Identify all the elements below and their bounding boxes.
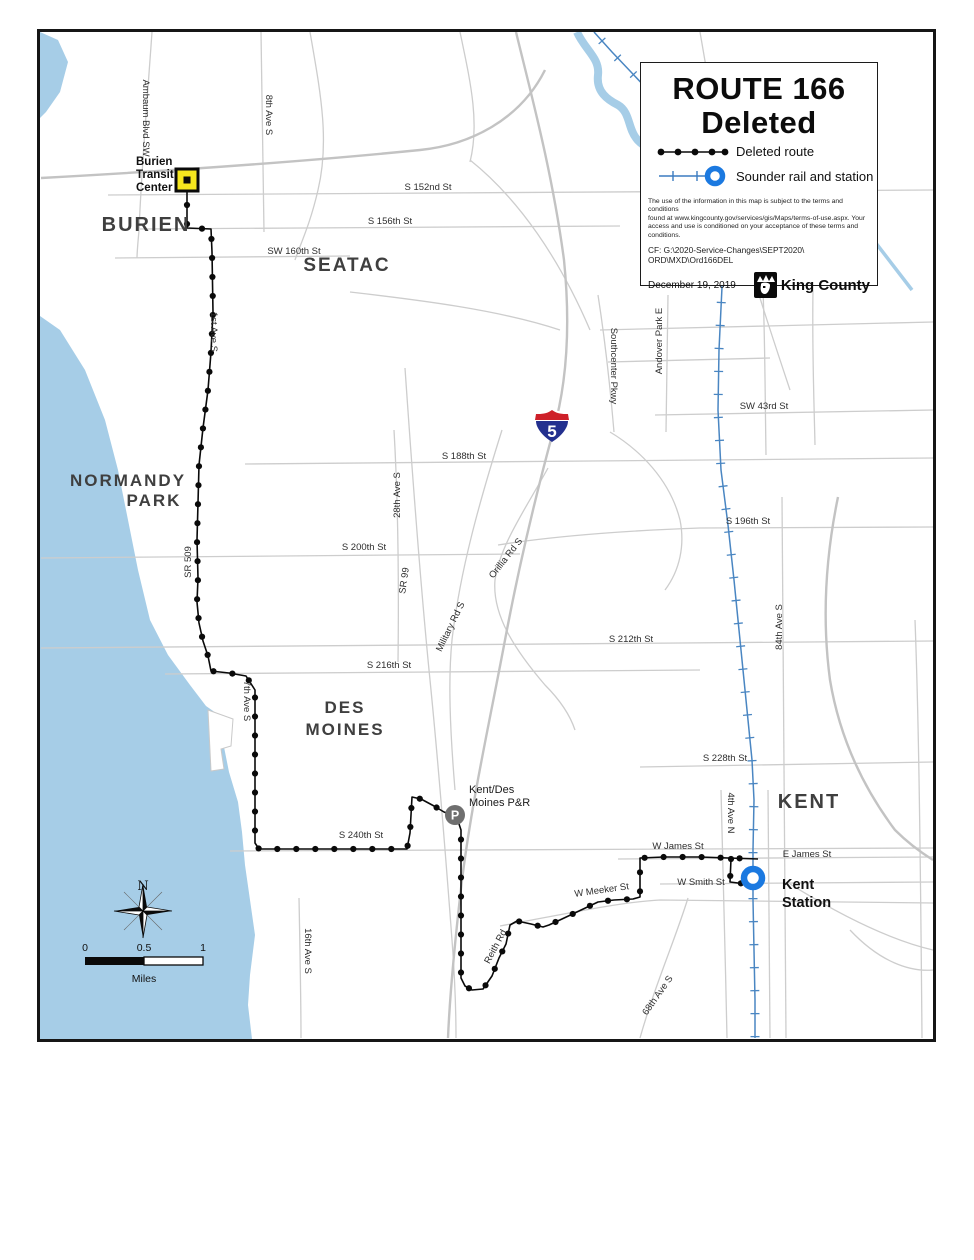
map-title-line1: ROUTE 166 — [641, 72, 877, 106]
street-label-84th-ave: 84th Ave S — [774, 604, 785, 650]
city-label-kent: KENT — [778, 791, 840, 813]
street-label-28th-ave: 28th Ave S — [392, 472, 403, 518]
street-label-1st-ave: 1st Ave S — [208, 312, 219, 352]
i5-shield-number: 5 — [547, 422, 556, 441]
disclaimer-line3: access and use is conditioned on your ac… — [648, 223, 871, 240]
cf-path-text: CF: G:\2020-Service-Changes\SEPT2020\ OR… — [648, 246, 871, 265]
disclaimer-text: The use of the information in this map i… — [648, 198, 871, 240]
cf-line2: ORD\MXD\Ord166DEL — [648, 256, 871, 266]
street-label-wsmith: W Smith St — [677, 877, 725, 888]
street-label-sw43: SW 43rd St — [740, 401, 789, 412]
pnr-label-2: Moines P&R — [469, 797, 530, 809]
street-label-s152: S 152nd St — [404, 182, 451, 193]
page: { "infobox": { "title1": "ROUTE 166", "t… — [0, 0, 974, 1260]
street-label-7th-ave: 7th Ave S — [241, 681, 252, 722]
btc-label-3: Center — [136, 182, 173, 194]
creek — [872, 238, 912, 290]
i5-shield-icon: 5 — [534, 408, 570, 442]
deleted-route-line — [187, 186, 452, 849]
scale-unit: Miles — [132, 973, 157, 985]
king-county-logo-icon — [754, 272, 777, 298]
street-label-8th-ave: 8th Ave S — [263, 95, 274, 136]
map-title-line2: Deleted — [641, 106, 877, 140]
street-label-s188: S 188th St — [442, 451, 487, 462]
kent-station-label-2: Station — [782, 895, 831, 911]
freeway-i5 — [448, 32, 567, 1038]
street-label-southcenter: Southcenter Pkwy — [608, 328, 619, 405]
street-label-military: Military Rd S — [434, 600, 467, 653]
btc-label-2: Transit — [136, 169, 174, 181]
pnr-label-1: Kent/Des — [469, 784, 515, 796]
park-and-ride-p: P — [451, 809, 459, 823]
water-inlet — [40, 32, 68, 118]
water-main — [40, 316, 255, 1039]
street-label-s228: S 228th St — [703, 753, 748, 764]
street-label-andover: Andover Park E — [654, 308, 665, 375]
disclaimer-line2: found at www.kingcounty.gov/services/gis… — [648, 215, 871, 223]
scale-half: 0.5 — [137, 942, 152, 954]
deleted-route-sample-icon — [657, 145, 729, 159]
street-label-sr509: SR 509 — [183, 546, 194, 578]
scale-zero: 0 — [82, 942, 88, 954]
street-label-4th-ave-n: 4th Ave N — [725, 792, 736, 833]
kent-station-label-1: Kent — [782, 877, 814, 893]
city-label-des-moines-1: DES — [325, 698, 366, 717]
street-label-ejames: E James St — [783, 849, 832, 860]
street-label-s196: S 196th St — [726, 516, 771, 527]
city-label-des-moines-2: MOINES — [305, 720, 384, 739]
street-label-s156: S 156th St — [368, 216, 413, 227]
street-label-sw160: SW 160th St — [267, 246, 321, 257]
street-label-s240: S 240th St — [339, 830, 384, 841]
legend-row-sounder: Sounder rail and station — [657, 163, 877, 189]
legend-row-deleted-route: Deleted route — [657, 144, 877, 159]
marina-pier — [208, 710, 233, 771]
king-county-logo: King County — [754, 272, 870, 298]
street-label-16th-ave: 16th Ave S — [302, 928, 313, 974]
info-box: ROUTE 166 Deleted Deleted route Sounder … — [640, 62, 878, 286]
street-label-sr99: SR 99 — [397, 567, 412, 595]
legend-label-sounder: Sounder rail and station — [736, 169, 873, 184]
street-label-wmeeker: W Meeker St — [574, 881, 630, 900]
scale-one: 1 — [200, 942, 206, 954]
kent-station-marker — [744, 869, 762, 887]
street-label-s200: S 200th St — [342, 542, 387, 553]
city-label-normandy-park-1: NORMANDY — [70, 471, 186, 490]
sounder-sample-icon — [657, 163, 729, 189]
street-label-ambaum: Ambaum Blvd SW — [140, 79, 151, 156]
disclaimer-line1: The use of the information in this map i… — [648, 198, 871, 215]
street-label-s212: S 212th St — [609, 634, 654, 645]
city-label-burien: BURIEN — [102, 214, 191, 236]
burien-transit-center-marker — [176, 169, 198, 191]
btc-label-1: Burien — [136, 156, 172, 168]
park-and-ride-marker: P — [445, 805, 465, 825]
legend-label-deleted-route: Deleted route — [736, 144, 814, 159]
street-label-wjames: W James St — [652, 841, 704, 852]
city-label-normandy-park-2: PARK — [127, 491, 182, 510]
king-county-logo-text: King County — [781, 277, 870, 294]
city-label-seatac: SEATAC — [303, 255, 390, 276]
street-label-s216: S 216th St — [367, 660, 412, 671]
map-date: December 19, 2019 — [648, 280, 736, 291]
street-label-68th-ave: 68th Ave S — [640, 974, 675, 1018]
